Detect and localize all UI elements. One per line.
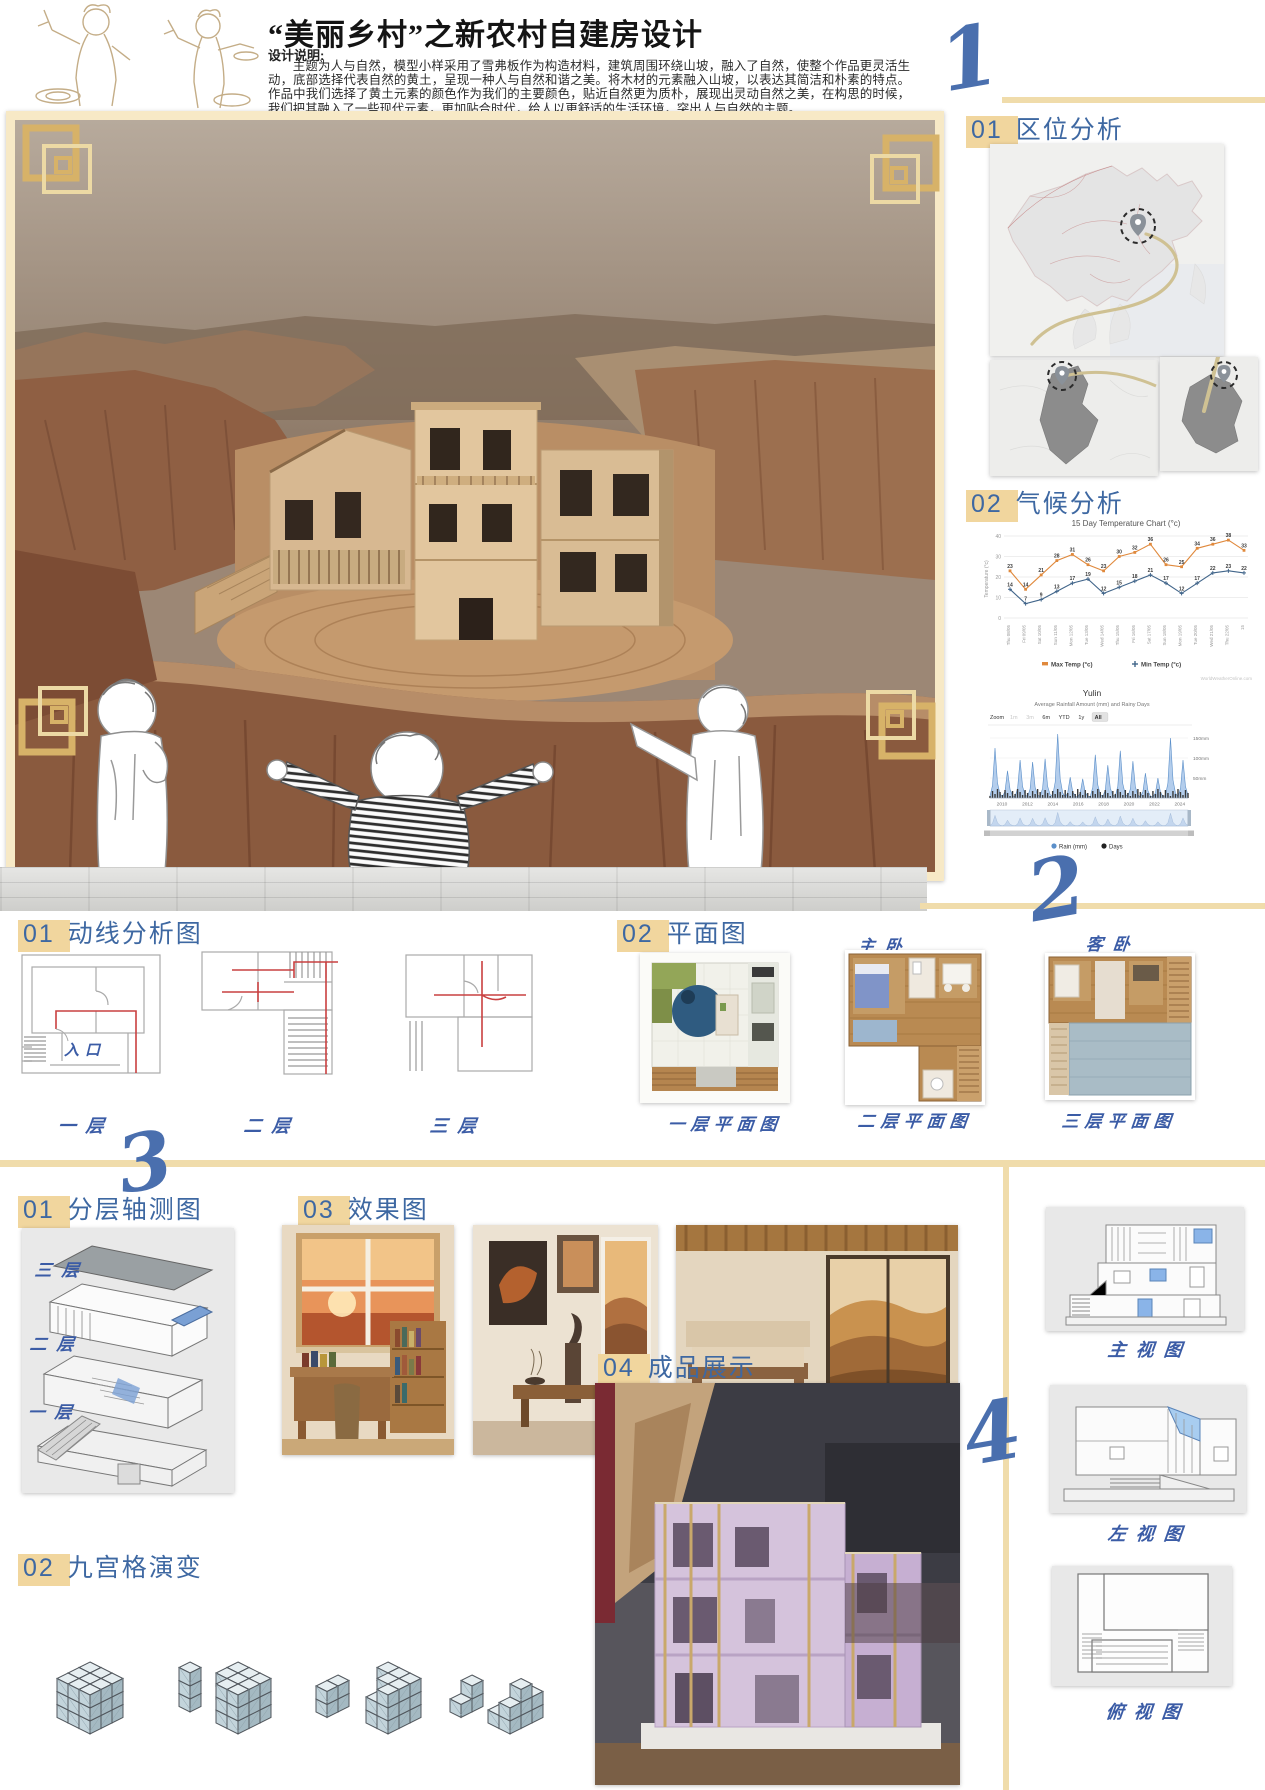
interior-render-study [282,1225,454,1455]
svg-text:18: 18 [1132,574,1138,580]
view-label-front: 主视图 [1107,1336,1194,1362]
svg-text:150mm: 150mm [1193,736,1209,742]
model-product-photo [595,1383,960,1785]
floorplans-header: 02 平面图 [617,914,748,952]
circulation-plan-floor3 [398,951,544,1077]
svg-text:36: 36 [1210,537,1216,543]
svg-text:6m: 6m [1042,715,1050,721]
svg-text:19: 19 [1085,572,1091,578]
svg-text:Sun 18/05: Sun 18/05 [1162,625,1167,646]
axon-floor-label-1: 一层 [27,1398,84,1423]
svg-text:15: 15 [1240,625,1245,631]
svg-text:100mm: 100mm [1193,756,1209,762]
svg-text:21: 21 [1038,568,1044,574]
svg-text:Yulin: Yulin [1083,688,1102,698]
svg-text:13: 13 [1054,584,1060,590]
frame-ornament [868,134,940,206]
floor-label-3: 三层 [429,1112,488,1138]
axon-header-number: 01 [18,1196,70,1228]
svg-text:12: 12 [1101,586,1107,592]
svg-text:21: 21 [1148,568,1154,574]
grid-evolution-header: 02 九宫格演变 [18,1548,203,1586]
svg-text:Fri 16/05: Fri 16/05 [1131,625,1136,643]
svg-text:17: 17 [1163,576,1169,582]
stone-wall-strip [0,867,927,911]
svg-text:50mm: 50mm [1193,776,1206,782]
axon-header: 01 分层轴测图 [18,1190,203,1228]
svg-text:Thu 08/05: Thu 08/05 [1006,625,1011,646]
svg-text:Max Temp (°c): Max Temp (°c) [1051,662,1093,669]
section-number-4: 4 [957,1388,1027,1479]
svg-text:3m: 3m [1026,715,1034,721]
plan-caption-3: 三层平面图 [1061,1107,1179,1132]
floorplans-header-number: 02 [617,920,669,952]
room-label-guest: 客卧 [1085,930,1142,955]
circulation-header-title: 动线分析图 [68,920,203,948]
svg-text:2020: 2020 [1124,802,1135,808]
floor-label-2: 二层 [243,1112,302,1138]
svg-text:12: 12 [1179,586,1185,592]
svg-text:0: 0 [998,616,1001,622]
axon-floor-label-2: 二层 [29,1330,86,1355]
svg-text:30: 30 [995,554,1001,560]
frame-ornament [864,688,936,760]
svg-text:38: 38 [1226,533,1232,539]
renders-header-number: 03 [298,1196,350,1228]
product-header-number: 04 [598,1354,650,1386]
svg-text:17: 17 [1070,576,1076,582]
svg-text:31: 31 [1070,547,1076,553]
svg-text:23: 23 [1101,564,1107,570]
svg-text:2012: 2012 [1022,802,1033,808]
view-label-left: 左视图 [1107,1520,1194,1546]
svg-text:Thu 15/05: Thu 15/05 [1115,625,1120,646]
plan-caption-1: 一层平面图 [667,1110,785,1135]
floorplan-render-1 [640,953,790,1103]
nine-grid-cubes [10,1600,555,1745]
floorplans-header-title: 平面图 [667,920,748,948]
svg-text:Temperature (°c): Temperature (°c) [984,560,990,598]
product-header-title: 成品展示 [648,1354,756,1382]
circulation-plan-floor2 [198,948,358,1078]
circulation-header: 01 动线分析图 [18,914,203,952]
province-map-left [990,360,1158,476]
svg-text:2022: 2022 [1149,802,1160,808]
svg-text:20: 20 [995,575,1001,581]
product-header: 04 成品展示 [598,1348,756,1386]
svg-text:1y: 1y [1078,715,1084,721]
svg-text:2016: 2016 [1073,802,1084,808]
svg-text:14: 14 [1007,582,1013,588]
svg-text:22: 22 [1241,566,1247,572]
svg-text:WorldWeatherOnline.com: WorldWeatherOnline.com [1201,676,1253,681]
svg-text:26: 26 [1085,558,1091,564]
svg-text:Sun 11/05: Sun 11/05 [1053,625,1058,646]
svg-text:15: 15 [1116,580,1122,586]
svg-text:Mon 12/05: Mon 12/05 [1068,625,1073,647]
svg-text:YTD: YTD [1059,715,1070,721]
svg-text:26: 26 [1163,558,1169,564]
svg-text:Average Rainfall Amount (mm) a: Average Rainfall Amount (mm) and Rainy D… [1034,702,1149,708]
divider-horizontal [0,1160,1265,1167]
renders-header: 03 效果图 [298,1190,429,1228]
section-number-1: 1 [933,12,1005,105]
svg-text:23: 23 [1007,564,1013,570]
accent-line-top [1002,97,1265,103]
hero-model-photo [6,111,944,881]
svg-text:Thu 22/05: Thu 22/05 [1224,625,1229,646]
renders-header-title: 效果图 [348,1196,429,1224]
floorplan-render-3 [1045,953,1195,1100]
svg-text:2018: 2018 [1098,802,1109,808]
view-label-top: 俯视图 [1105,1698,1192,1724]
svg-text:22: 22 [1210,566,1216,572]
entrance-label: 入口 [64,1042,106,1059]
svg-text:Days: Days [1109,844,1123,850]
location-analysis-header: 01 区位分析 [966,110,1124,148]
svg-text:Tue 20/05: Tue 20/05 [1193,625,1198,646]
svg-text:2010: 2010 [997,802,1008,808]
svg-text:25: 25 [1179,560,1185,566]
design-note-text: 主题为人与自然，模型小样采用了雪弗板作为构造材料，建筑周围环绕山坡，融入了自然，… [268,59,910,116]
svg-text:Zoom: Zoom [990,715,1004,721]
svg-text:34: 34 [1194,541,1200,547]
left-elevation-drawing [1050,1385,1246,1513]
page-title: “美丽乡村”之新农村自建房设计 [268,10,703,54]
svg-text:Wed 21/05: Wed 21/05 [1209,625,1214,647]
svg-text:Mon 19/05: Mon 19/05 [1178,625,1183,647]
svg-text:15 Day Temperature Chart (°c): 15 Day Temperature Chart (°c) [1072,519,1181,528]
svg-text:33: 33 [1241,543,1247,549]
svg-text:Fri 09/05: Fri 09/05 [1022,625,1027,643]
rainfall-area-chart: YulinAverage Rainfall Amount (mm) and Ra… [980,684,1262,856]
section-number-2: 2 [1021,844,1091,935]
chef-sketch-illustration [18,0,263,116]
svg-text:40: 40 [995,534,1001,540]
circulation-plan-floor1: 入口 [16,951,164,1077]
svg-text:2024: 2024 [1174,802,1185,808]
svg-text:Sat 10/05: Sat 10/05 [1037,625,1042,645]
svg-text:32: 32 [1132,545,1138,551]
svg-text:All: All [1095,715,1103,721]
top-view-drawing [1052,1566,1232,1686]
location-header-title: 区位分析 [1016,116,1124,144]
plan-caption-2: 二层平面图 [857,1107,975,1132]
svg-text:Wed 14/05: Wed 14/05 [1100,625,1105,647]
svg-text:10: 10 [995,595,1001,601]
accent-line-2 [920,903,1265,909]
svg-text:17: 17 [1194,576,1200,582]
svg-text:1m: 1m [1010,715,1018,721]
circulation-header-number: 01 [18,920,70,952]
temperature-line-chart: 15 Day Temperature Chart (°c)Temperature… [980,514,1262,686]
svg-text:Sat 17/05: Sat 17/05 [1146,625,1151,645]
front-elevation-drawing [1046,1207,1244,1331]
svg-text:Tue 13/05: Tue 13/05 [1084,625,1089,646]
axon-header-title: 分层轴测图 [68,1196,203,1224]
frame-ornament [18,684,90,756]
grid-header-number: 02 [18,1554,70,1586]
svg-text:14: 14 [1023,582,1029,588]
svg-text:2014: 2014 [1047,802,1058,808]
svg-text:9: 9 [1040,593,1043,599]
grid-header-title: 九宫格演变 [68,1554,203,1582]
svg-text:Min Temp (°c): Min Temp (°c) [1141,662,1181,669]
svg-text:7: 7 [1024,597,1027,603]
svg-text:23: 23 [1226,564,1232,570]
floor-label-1: 一层 [57,1112,116,1138]
frame-ornament [22,124,94,196]
floorplan-render-2 [845,950,985,1105]
svg-text:28: 28 [1054,554,1060,560]
province-map-right [1160,357,1258,471]
svg-text:36: 36 [1148,537,1154,543]
china-map [990,144,1224,356]
axon-floor-label-3: 三层 [34,1256,91,1281]
poster-root: “美丽乡村”之新农村自建房设计 设计说明: 主题为人与自然，模型小样采用了雪弗板… [0,0,1265,1790]
svg-text:30: 30 [1116,550,1122,556]
